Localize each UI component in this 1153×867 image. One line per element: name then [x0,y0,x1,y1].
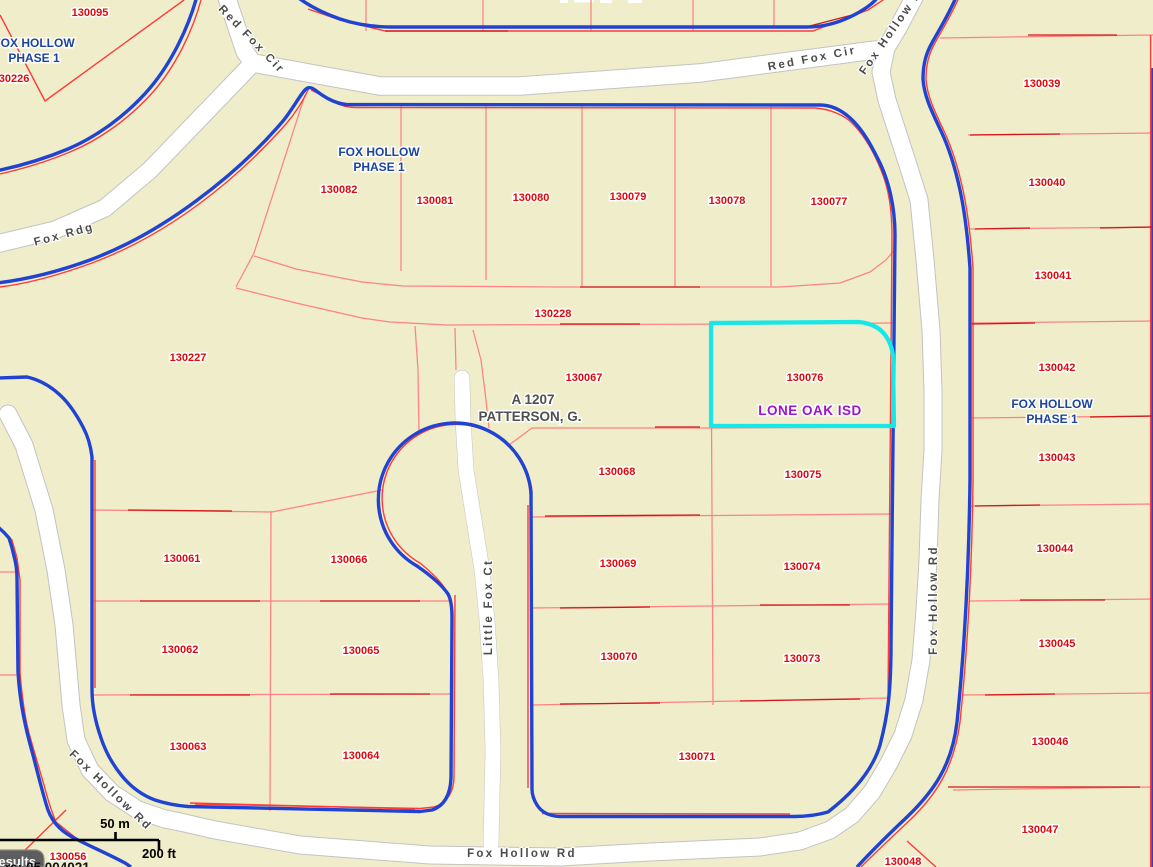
svg-text:A 1207: A 1207 [511,392,554,407]
svg-text:130228: 130228 [535,308,572,320]
svg-text:130041: 130041 [1035,270,1072,282]
svg-text:rs: 05 004021: rs: 05 004021 [5,860,90,867]
svg-text:130048: 130048 [885,856,922,867]
svg-text:130066: 130066 [331,554,368,566]
svg-text:Fox Hollow Rd: Fox Hollow Rd [928,545,940,655]
svg-text:PHASE 1: PHASE 1 [353,160,405,174]
svg-text:130078: 130078 [709,195,746,207]
svg-text:130044: 130044 [1037,543,1075,555]
svg-text:130074: 130074 [784,561,822,573]
svg-text:130079: 130079 [610,191,647,203]
svg-text:PHASE 1: PHASE 1 [8,51,60,65]
svg-text:PATTERSON, G.: PATTERSON, G. [478,409,581,424]
svg-text:130071: 130071 [679,751,716,763]
svg-text:130045: 130045 [1039,638,1076,650]
svg-text:130061: 130061 [164,553,201,565]
svg-text:130075: 130075 [785,469,822,481]
svg-text:130040: 130040 [1029,177,1066,189]
svg-text:130226: 130226 [0,73,29,85]
svg-text:130077: 130077 [811,196,848,208]
svg-text:130042: 130042 [1039,362,1076,374]
svg-text:130065: 130065 [343,645,380,657]
svg-text:FOX HOLLOW: FOX HOLLOW [1011,397,1093,411]
svg-text:130070: 130070 [601,651,638,663]
svg-text:130067: 130067 [566,372,603,384]
svg-text:50 m: 50 m [100,816,130,831]
svg-text:130063: 130063 [170,741,207,753]
svg-text:200 ft: 200 ft [142,846,177,861]
svg-text:LONE OAK ISD: LONE OAK ISD [758,403,862,418]
svg-text:130046: 130046 [1032,736,1069,748]
svg-text:130064: 130064 [343,750,381,762]
svg-text:130039: 130039 [1024,78,1061,90]
svg-text:130043: 130043 [1039,452,1076,464]
svg-text:130082: 130082 [321,184,358,196]
svg-text:130076: 130076 [787,372,824,384]
svg-text:130068: 130068 [599,466,636,478]
svg-text:130062: 130062 [162,644,199,656]
svg-text:Fox Hollow Rd: Fox Hollow Rd [467,848,577,860]
svg-text:130047: 130047 [1022,824,1059,836]
svg-text:FOX HOLLOW: FOX HOLLOW [0,36,75,50]
svg-text:130095: 130095 [72,7,109,19]
svg-text:130081: 130081 [417,195,454,207]
svg-text:130073: 130073 [784,653,821,665]
svg-text:PHASE 1: PHASE 1 [1026,412,1078,426]
svg-text:130227: 130227 [170,352,207,364]
svg-text:FOX HOLLOW: FOX HOLLOW [338,145,420,159]
svg-text:Little Fox Ct: Little Fox Ct [483,559,495,655]
svg-text:130069: 130069 [600,558,637,570]
svg-text:130080: 130080 [513,192,550,204]
